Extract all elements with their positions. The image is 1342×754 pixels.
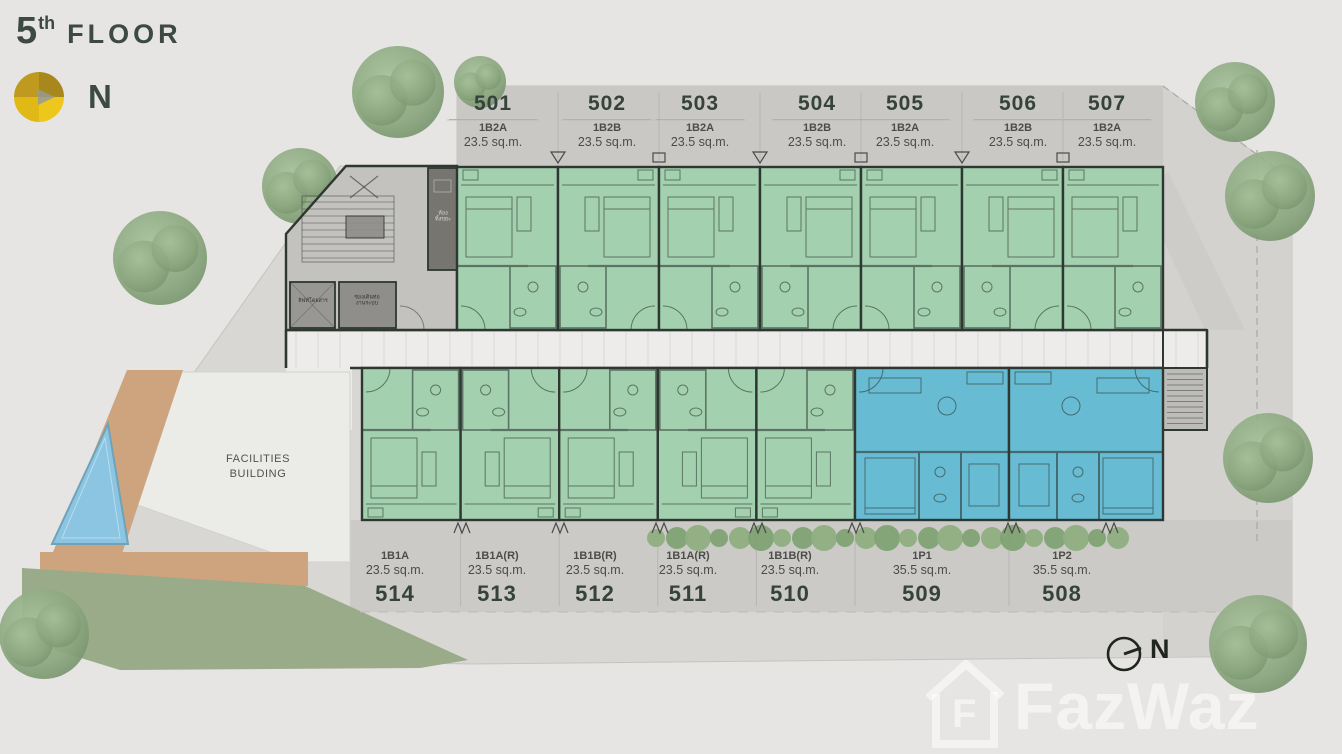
unit-num: 508 xyxy=(1033,581,1091,606)
unit-label-509: 1P135.5 sq.m.509 xyxy=(893,550,951,606)
unit-area: 23.5 sq.m. xyxy=(366,563,424,577)
unit-shape-502 xyxy=(558,167,659,330)
unit-label-rule xyxy=(563,119,651,120)
fazwaz-house-icon: F xyxy=(922,660,1014,750)
unit-num: 505 xyxy=(861,92,949,116)
unit-type: 1B2B xyxy=(974,122,1062,135)
unit-label-503: 5031B2A23.5 sq.m. xyxy=(656,92,744,149)
unit-shape-503 xyxy=(659,167,760,330)
unit-label-513: 1B1A(R)23.5 sq.m.513 xyxy=(468,550,526,606)
unit-type: 1B1B(R) xyxy=(761,550,819,563)
trash-room-label: ห้อง ทิ้งขยะ xyxy=(430,211,457,224)
unit-shape-505 xyxy=(861,167,962,330)
unit-area: 23.5 sq.m. xyxy=(974,135,1062,149)
unit-area: 23.5 sq.m. xyxy=(563,135,651,149)
compass-north-label: N xyxy=(88,78,112,116)
unit-label-rule xyxy=(861,119,949,120)
unit-shape-514 xyxy=(362,368,461,520)
unit-area: 23.5 sq.m. xyxy=(761,563,819,577)
unit-type: 1B2A xyxy=(1063,122,1151,135)
unit-area: 35.5 sq.m. xyxy=(893,563,951,577)
unit-num: 513 xyxy=(468,581,526,606)
unit-num: 511 xyxy=(659,581,717,606)
fazwaz-brand-text: FazWaz xyxy=(1014,660,1260,752)
unit-type: 1B1A xyxy=(366,550,424,563)
fazwaz-watermark: F FazWaz xyxy=(922,660,1260,752)
unit-type: 1B2A xyxy=(861,122,949,135)
unit-label-rule xyxy=(656,119,744,120)
unit-num: 512 xyxy=(566,581,624,606)
unit-area: 23.5 sq.m. xyxy=(659,563,717,577)
unit-label-rule xyxy=(449,119,537,120)
unit-shape-510 xyxy=(756,368,855,520)
unit-label-512: 1B1B(R)23.5 sq.m.512 xyxy=(566,550,624,606)
unit-label-502: 5021B2B23.5 sq.m. xyxy=(563,92,651,149)
floor-ordinal: th xyxy=(38,13,55,33)
compass-rose-icon xyxy=(14,72,64,122)
facilities-building-label: FACILITIES BUILDING xyxy=(194,452,322,482)
unit-area: 23.5 sq.m. xyxy=(449,135,537,149)
unit-type: 1B1B(R) xyxy=(566,550,624,563)
unit-area: 23.5 sq.m. xyxy=(861,135,949,149)
tree-icon xyxy=(113,211,207,305)
unit-type: 1B1A(R) xyxy=(659,550,717,563)
facilities-line2: BUILDING xyxy=(194,467,322,482)
tree-icon xyxy=(352,46,444,138)
unit-num: 507 xyxy=(1063,92,1151,116)
unit-label-506: 5061B2B23.5 sq.m. xyxy=(974,92,1062,149)
unit-num: 504 xyxy=(773,92,861,116)
unit-type: 1B2B xyxy=(773,122,861,135)
unit-label-rule xyxy=(974,119,1062,120)
unit-shape-512 xyxy=(559,368,658,520)
unit-area: 23.5 sq.m. xyxy=(468,563,526,577)
tree-icon xyxy=(1225,151,1315,241)
lift-room-label: ลิฟท์โดยสาร xyxy=(292,298,333,304)
unit-shape-506 xyxy=(962,167,1063,330)
unit-shape-511 xyxy=(658,368,757,520)
unit-label-rule xyxy=(1063,119,1151,120)
unit-type: 1B2A xyxy=(449,122,537,135)
unit-label-504: 5041B2B23.5 sq.m. xyxy=(773,92,861,149)
unit-label-510: 1B1B(R)23.5 sq.m.510 xyxy=(761,550,819,606)
tree-icon xyxy=(0,589,89,679)
unit-type: 1B1A(R) xyxy=(468,550,526,563)
unit-num: 502 xyxy=(563,92,651,116)
unit-label-508: 1P235.5 sq.m.508 xyxy=(1033,550,1091,606)
facilities-line1: FACILITIES xyxy=(194,452,322,467)
unit-shape-513 xyxy=(461,368,560,520)
unit-num: 501 xyxy=(449,92,537,116)
floorplan-stage: 5thFLOOR N FACILITIES BUILDING 5011B2A23… xyxy=(0,0,1342,754)
unit-area: 23.5 sq.m. xyxy=(1063,135,1151,149)
unit-area: 23.5 sq.m. xyxy=(773,135,861,149)
floor-number: 5 xyxy=(16,10,38,52)
unit-area: 23.5 sq.m. xyxy=(566,563,624,577)
unit-label-501: 5011B2A23.5 sq.m. xyxy=(449,92,537,149)
unit-type: 1P1 xyxy=(893,550,951,563)
unit-area: 35.5 sq.m. xyxy=(1033,563,1091,577)
unit-shape-507 xyxy=(1063,167,1163,330)
unit-shape-509 xyxy=(855,368,1009,520)
unit-label-511: 1B1A(R)23.5 sq.m.511 xyxy=(659,550,717,606)
unit-area: 23.5 sq.m. xyxy=(656,135,744,149)
shaft-room-label: ช่องเดินท่อ งานระบบ xyxy=(341,295,393,308)
unit-shape-508 xyxy=(1009,368,1163,520)
unit-num: 509 xyxy=(893,581,951,606)
floor-title: 5thFLOOR xyxy=(16,10,182,53)
unit-type: 1B2A xyxy=(656,122,744,135)
unit-num: 506 xyxy=(974,92,1062,116)
unit-shape-504 xyxy=(760,167,861,330)
unit-label-507: 5071B2A23.5 sq.m. xyxy=(1063,92,1151,149)
unit-type: 1P2 xyxy=(1033,550,1091,563)
unit-num: 503 xyxy=(656,92,744,116)
unit-shape-501 xyxy=(457,167,558,330)
tree-icon xyxy=(1223,413,1313,503)
unit-type: 1B2B xyxy=(563,122,651,135)
unit-label-514: 1B1A23.5 sq.m.514 xyxy=(366,550,424,606)
unit-label-rule xyxy=(773,119,861,120)
unit-num: 510 xyxy=(761,581,819,606)
compass-top: N xyxy=(14,72,112,122)
unit-num: 514 xyxy=(366,581,424,606)
corridor xyxy=(286,330,1207,368)
floor-word: FLOOR xyxy=(67,19,182,49)
unit-label-505: 5051B2A23.5 sq.m. xyxy=(861,92,949,149)
tree-icon xyxy=(1195,62,1275,142)
